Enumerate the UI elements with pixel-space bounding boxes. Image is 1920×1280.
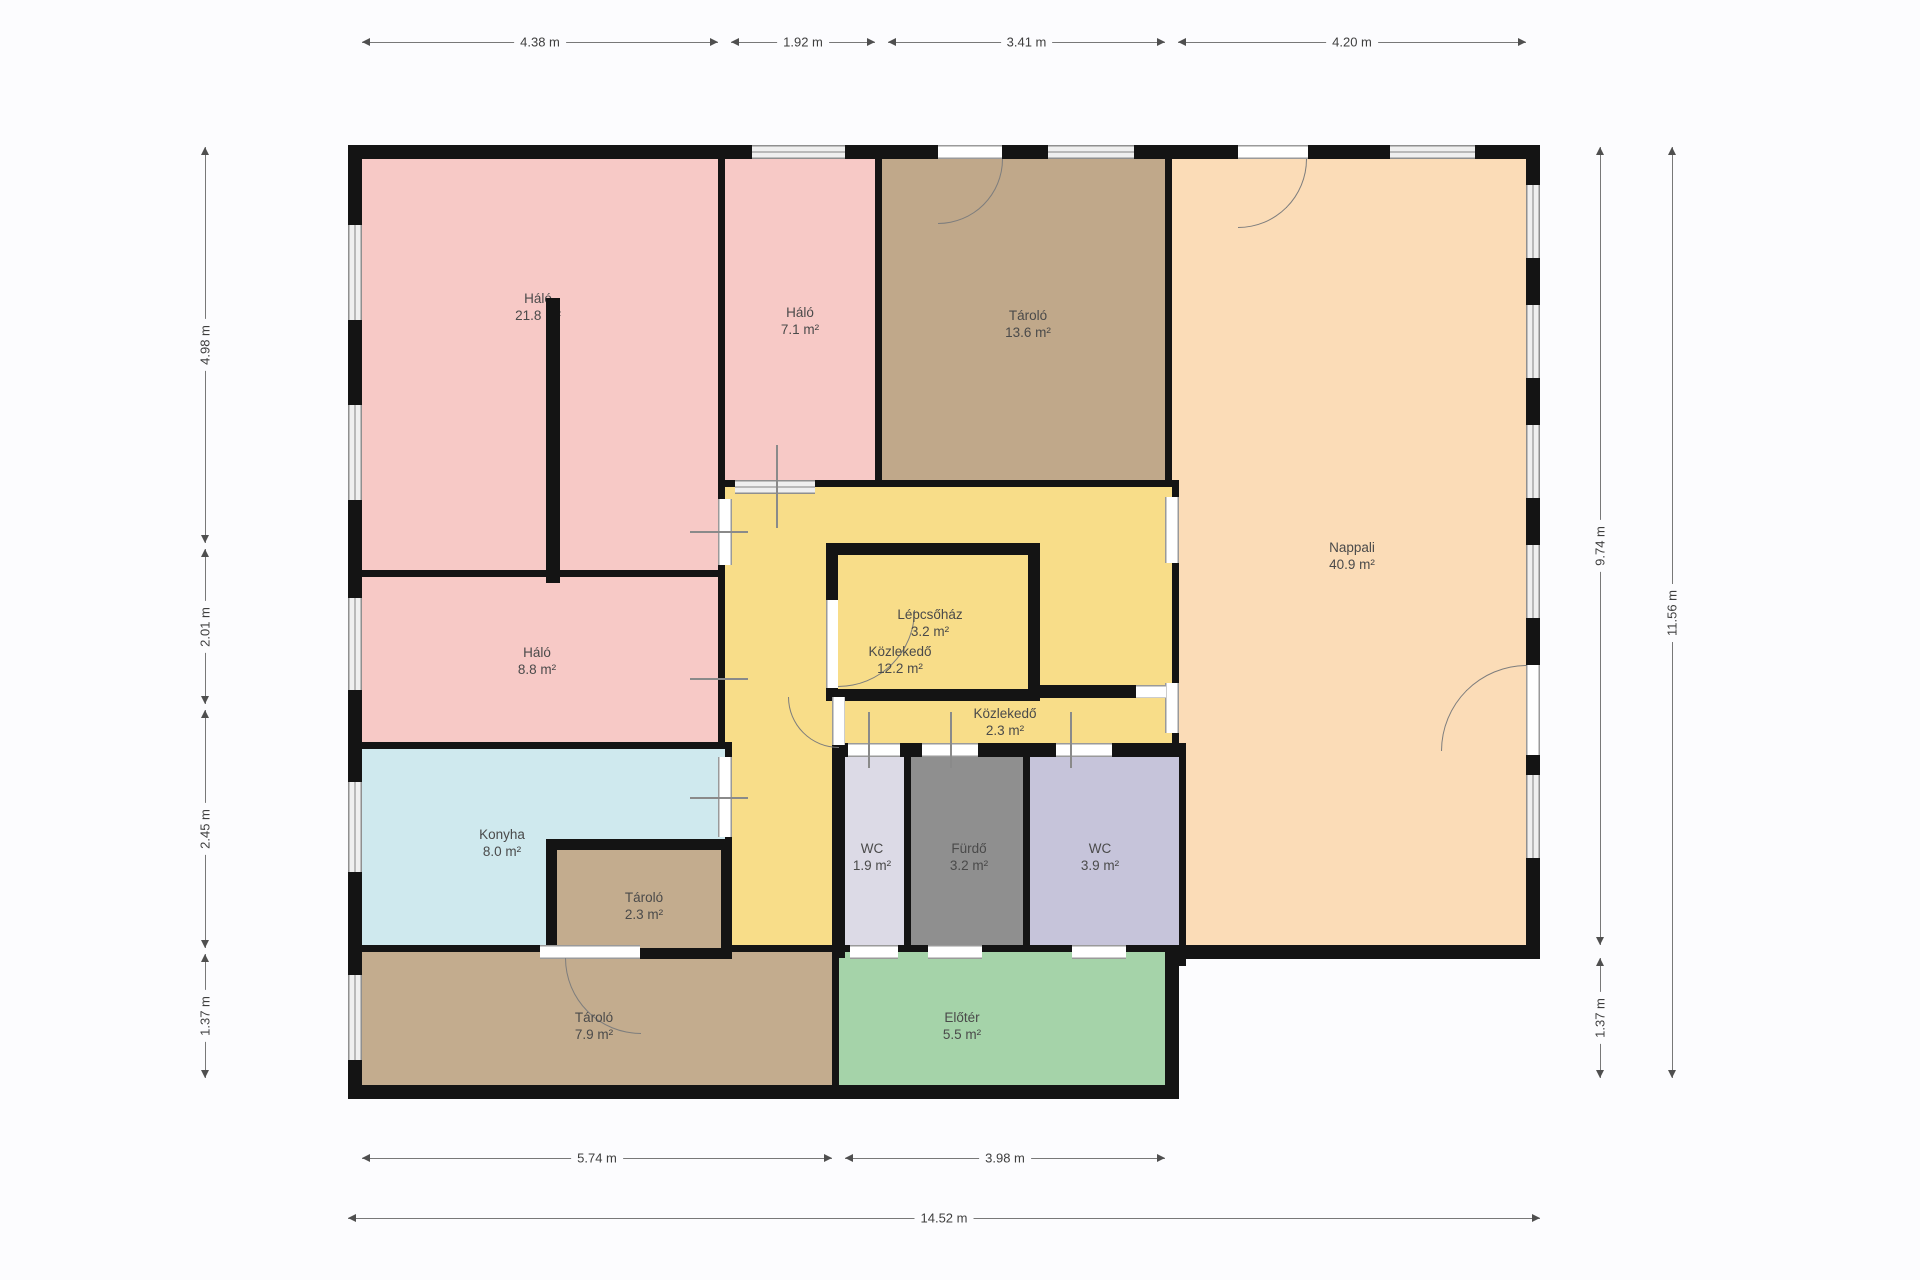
door-opening [1238,145,1308,159]
room-area: 3.9 m² [1081,857,1119,874]
window [348,225,362,320]
door-opening [826,600,838,688]
room-name: Konyha [479,826,525,843]
dimension-top-2: 1.92 m [731,42,875,43]
dimension-right-2: 1.37 m [1600,958,1601,1078]
dimension-label: 3.98 m [979,1151,1031,1166]
room-name: Közlekedő [973,705,1036,722]
room-label-nappali: Nappali 40.9 m² [1329,539,1375,573]
dimension-bottom-1: 5.74 m [362,1158,832,1159]
room-label-kozlekedo-main: Közlekedő 12.2 m² [868,643,931,677]
room-area: 3.2 m² [950,857,988,874]
room-eloter [832,945,1179,1100]
room-label-wc-large: WC 3.9 m² [1081,840,1119,874]
door-opening [540,945,640,959]
room-area: 13.6 m² [1005,324,1051,341]
dimension-label: 4.38 m [514,35,566,50]
door-opening [1165,683,1179,733]
dimension-left-2: 2.01 m [205,549,206,704]
dimension-top-1: 4.38 m [362,42,718,43]
window [348,405,362,500]
room-name: Tároló [1009,307,1047,324]
room-area: 40.9 m² [1329,556,1375,573]
room-name: WC [1089,840,1112,857]
door-opening [938,145,1002,159]
window [1048,145,1134,159]
dimension-label: 2.45 m [198,803,213,855]
room-area: 7.1 m² [781,321,819,338]
room-area: 12.2 m² [877,660,923,677]
room-area: 5.5 m² [943,1026,981,1043]
dimension-label: 1.37 m [1593,992,1608,1044]
wall-annex-bottom [348,1085,1179,1099]
window [1526,545,1540,618]
window [348,598,362,690]
door-opening [1165,497,1179,563]
dimension-left-1: 4.98 m [205,147,206,543]
room-label-tarolo-top: Tároló 13.6 m² [1005,307,1051,341]
wall-corridor-top-right [1028,685,1138,698]
door-opening [1526,665,1540,755]
dimension-label: 1.37 m [198,990,213,1042]
window [348,782,362,872]
room-name: Közlekedő [868,643,931,660]
wall-eloter-right [1165,945,1179,1100]
door-leaf [868,712,870,768]
room-name: Előtér [944,1009,979,1026]
window [1390,145,1475,159]
floor-plan: Háló 21.8 m² Háló 7.1 m² Tároló 13.6 m² … [0,0,1920,1280]
door-opening [1072,945,1126,959]
dimension-top-3: 3.41 m [888,42,1165,43]
dimension-label: 4.98 m [198,319,213,371]
room-label-furdo: Fürdő 3.2 m² [950,840,988,874]
room-label-tarolo-small: Tároló 2.3 m² [625,889,663,923]
dimension-bottom-3: 14.52 m [348,1218,1540,1219]
room-name: Tároló [575,1009,613,1026]
room-name: Nappali [1329,539,1375,556]
dimension-right-1: 9.74 m [1600,147,1601,945]
room-area: 8.0 m² [483,843,521,860]
wall-stub-halo-large [546,298,560,583]
room-name: Háló [523,644,551,661]
dimension-label: 11.56 m [1665,583,1680,641]
wall-wc-small-left [832,750,845,958]
door-opening [850,945,898,959]
dimension-top-4: 4.20 m [1178,42,1526,43]
window [1526,425,1540,498]
room-name: Tároló [625,889,663,906]
wall-nappali-bottom [1165,945,1540,959]
room-label-lepcsohaz: Lépcsőház 3.2 m² [897,606,962,640]
dimension-label: 4.20 m [1326,35,1378,50]
room-label-konyha: Konyha 8.0 m² [479,826,525,860]
room-name: Háló [786,304,814,321]
dimension-label: 1.92 m [777,35,829,50]
room-label-halo-mid: Háló 8.8 m² [518,644,556,678]
room-area: 8.8 m² [518,661,556,678]
wall-tick [690,678,748,680]
dimension-label: 5.74 m [571,1151,623,1166]
window [752,145,845,159]
dimension-left-4: 1.37 m [205,954,206,1078]
room-label-eloter: Előtér 5.5 m² [943,1009,981,1043]
room-area: 2.3 m² [986,722,1024,739]
window [735,480,815,494]
room-area: 7.9 m² [575,1026,613,1043]
dimension-bottom-2: 3.98 m [845,1158,1165,1159]
dimension-label: 2.01 m [198,601,213,653]
door-opening [1136,685,1166,698]
room-name: Fürdő [951,840,986,857]
room-label-wc-small: WC 1.9 m² [853,840,891,874]
room-name: WC [861,840,884,857]
window [1526,305,1540,378]
room-area: 2.3 m² [625,906,663,923]
wall-tick [776,445,778,528]
door-opening [848,743,900,757]
door-leaf [1070,712,1072,768]
room-name: Lépcsőház [897,606,962,623]
dimension-label: 3.41 m [1001,35,1053,50]
wall-tick [690,797,748,799]
dimension-label: 9.74 m [1593,520,1608,572]
door-opening [928,945,982,959]
dimension-label: 14.52 m [915,1211,974,1226]
room-halo-large [348,145,732,584]
room-label-kozlekedo-small: Közlekedő 2.3 m² [973,705,1036,739]
window [1526,775,1540,858]
dimension-right-3: 11.56 m [1672,147,1673,1078]
window [348,975,362,1060]
room-area: 1.9 m² [853,857,891,874]
room-label-halo-small: Háló 7.1 m² [781,304,819,338]
room-area: 3.2 m² [911,623,949,640]
door-leaf [950,712,952,768]
wall-tick [690,531,748,533]
door-opening [1056,743,1112,757]
window [1526,185,1540,258]
room-label-tarolo-bottom: Tároló 7.9 m² [575,1009,613,1043]
dimension-left-3: 2.45 m [205,710,206,948]
